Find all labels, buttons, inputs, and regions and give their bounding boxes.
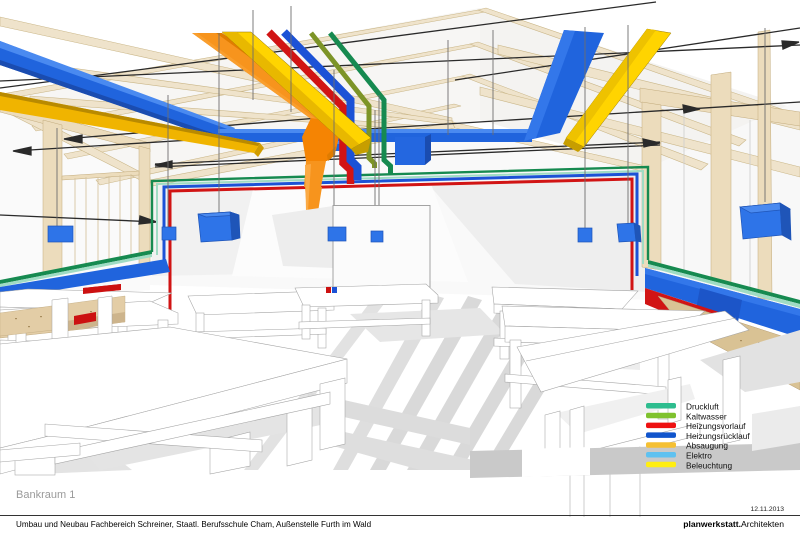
svg-text:Kaltwasser: Kaltwasser <box>686 411 727 421</box>
svg-text:Heizungsrücklauf: Heizungsrücklauf <box>686 431 750 441</box>
svg-text:planwerkstatt.Architekten: planwerkstatt.Architekten <box>683 519 784 529</box>
svg-text:Umbau und Neubau Fachbereich S: Umbau und Neubau Fachbereich Schreiner, … <box>16 520 371 529</box>
svg-text:Elektro: Elektro <box>686 451 712 461</box>
svg-text:Bankraum 1: Bankraum 1 <box>16 489 75 501</box>
svg-text:Beleuchtung: Beleuchtung <box>686 460 733 470</box>
svg-text:Heizungsvorlauf: Heizungsvorlauf <box>686 421 746 431</box>
svg-text:Absaugung: Absaugung <box>686 441 728 451</box>
svg-text:12.11.2013: 12.11.2013 <box>750 506 784 513</box>
svg-text:Druckluft: Druckluft <box>686 402 719 412</box>
